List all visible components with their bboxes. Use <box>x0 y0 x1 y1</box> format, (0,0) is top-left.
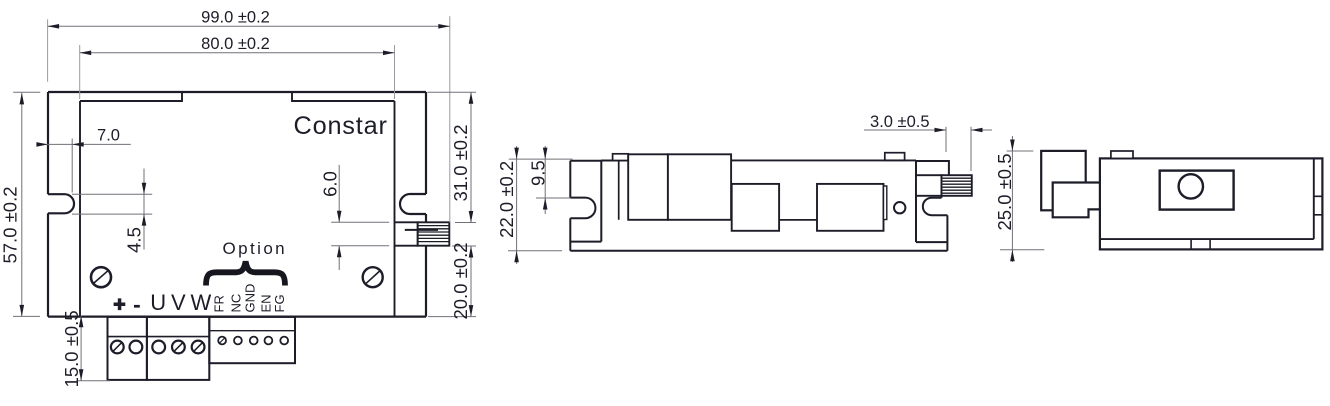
svg-text:57.0 ±0.2: 57.0 ±0.2 <box>0 186 20 263</box>
svg-text:99.0 ±0.2: 99.0 ±0.2 <box>201 9 270 27</box>
svg-text:9.5: 9.5 <box>527 160 548 186</box>
svg-text:22.0 ±0.2: 22.0 ±0.2 <box>496 161 517 238</box>
svg-text:GND: GND <box>243 284 258 313</box>
svg-text:3.0 ±0.5: 3.0 ±0.5 <box>870 113 930 131</box>
svg-text:31.0 ±0.2: 31.0 ±0.2 <box>450 124 471 201</box>
svg-text:U: U <box>150 290 166 315</box>
svg-text:80.0 ±0.2: 80.0 ±0.2 <box>201 35 270 53</box>
svg-text:FR: FR <box>212 295 227 312</box>
svg-text:V: V <box>171 290 186 315</box>
svg-text:Option: Option <box>223 239 288 258</box>
svg-text:6.0: 6.0 <box>320 171 341 197</box>
svg-text:4.5: 4.5 <box>123 227 144 253</box>
svg-text:15.0 ±0.5: 15.0 ±0.5 <box>61 310 82 387</box>
svg-text:Constar: Constar <box>294 112 388 140</box>
svg-text:NC: NC <box>228 294 243 313</box>
svg-text:25.0 ±0.5: 25.0 ±0.5 <box>994 153 1015 230</box>
svg-text:W: W <box>191 290 212 315</box>
svg-text:FG: FG <box>272 294 287 312</box>
svg-text:7.0: 7.0 <box>97 127 120 145</box>
svg-text:20.0 ±0.2: 20.0 ±0.2 <box>450 242 471 319</box>
